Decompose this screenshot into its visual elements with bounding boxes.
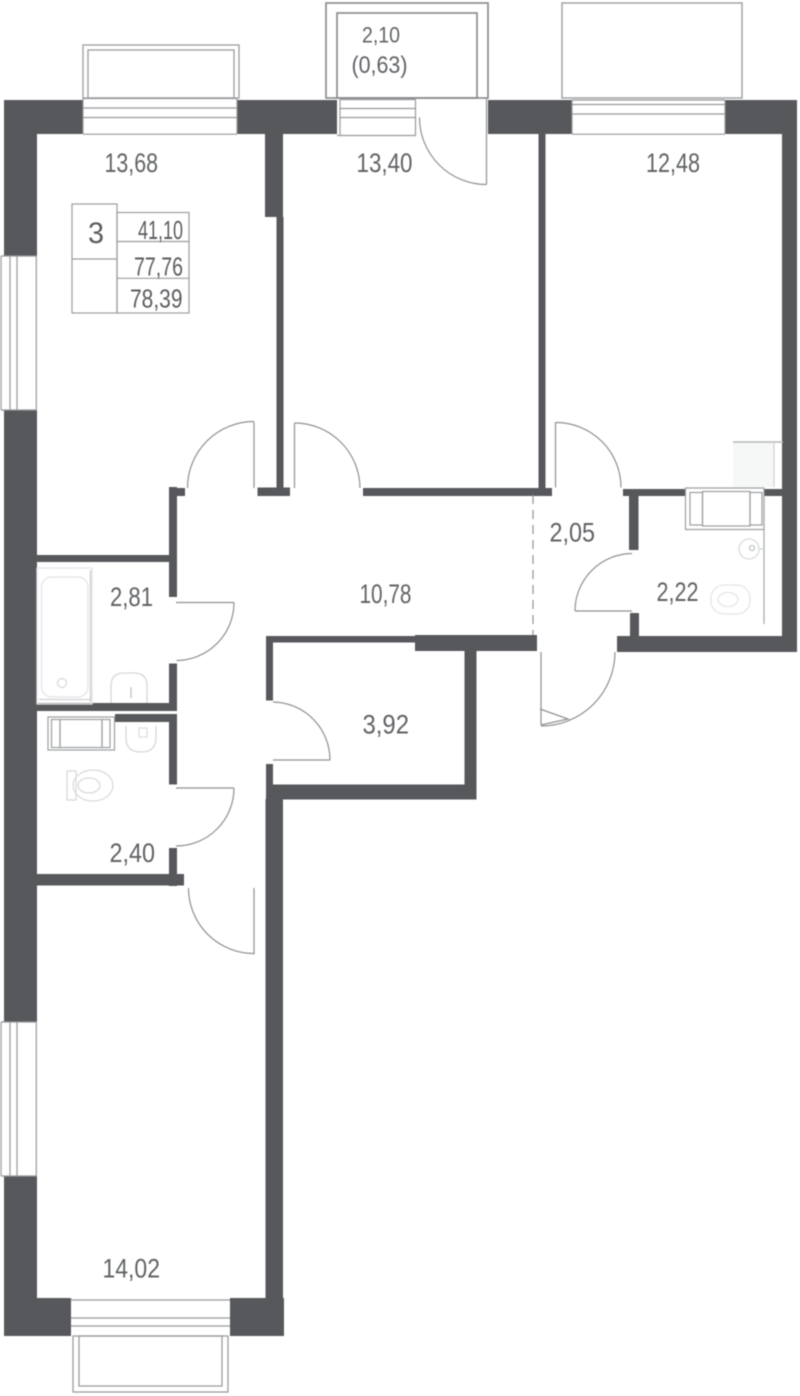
- svg-text:10,78: 10,78: [360, 579, 412, 609]
- svg-text:14,02: 14,02: [103, 1254, 161, 1284]
- svg-text:2,05: 2,05: [550, 518, 596, 548]
- svg-text:(0,63): (0,63): [352, 52, 408, 79]
- svg-text:12,48: 12,48: [646, 148, 700, 178]
- svg-text:3,92: 3,92: [363, 710, 410, 740]
- svg-text:3: 3: [88, 217, 104, 250]
- svg-text:13,40: 13,40: [357, 148, 413, 178]
- svg-text:78,39: 78,39: [130, 284, 183, 314]
- svg-text:2,22: 2,22: [657, 577, 699, 607]
- svg-text:2,81: 2,81: [110, 582, 153, 612]
- svg-text:41,10: 41,10: [138, 215, 183, 245]
- svg-text:2,10: 2,10: [362, 23, 400, 48]
- svg-text:13,68: 13,68: [105, 148, 159, 178]
- svg-text:2,40: 2,40: [110, 838, 156, 868]
- svg-text:77,76: 77,76: [134, 252, 183, 282]
